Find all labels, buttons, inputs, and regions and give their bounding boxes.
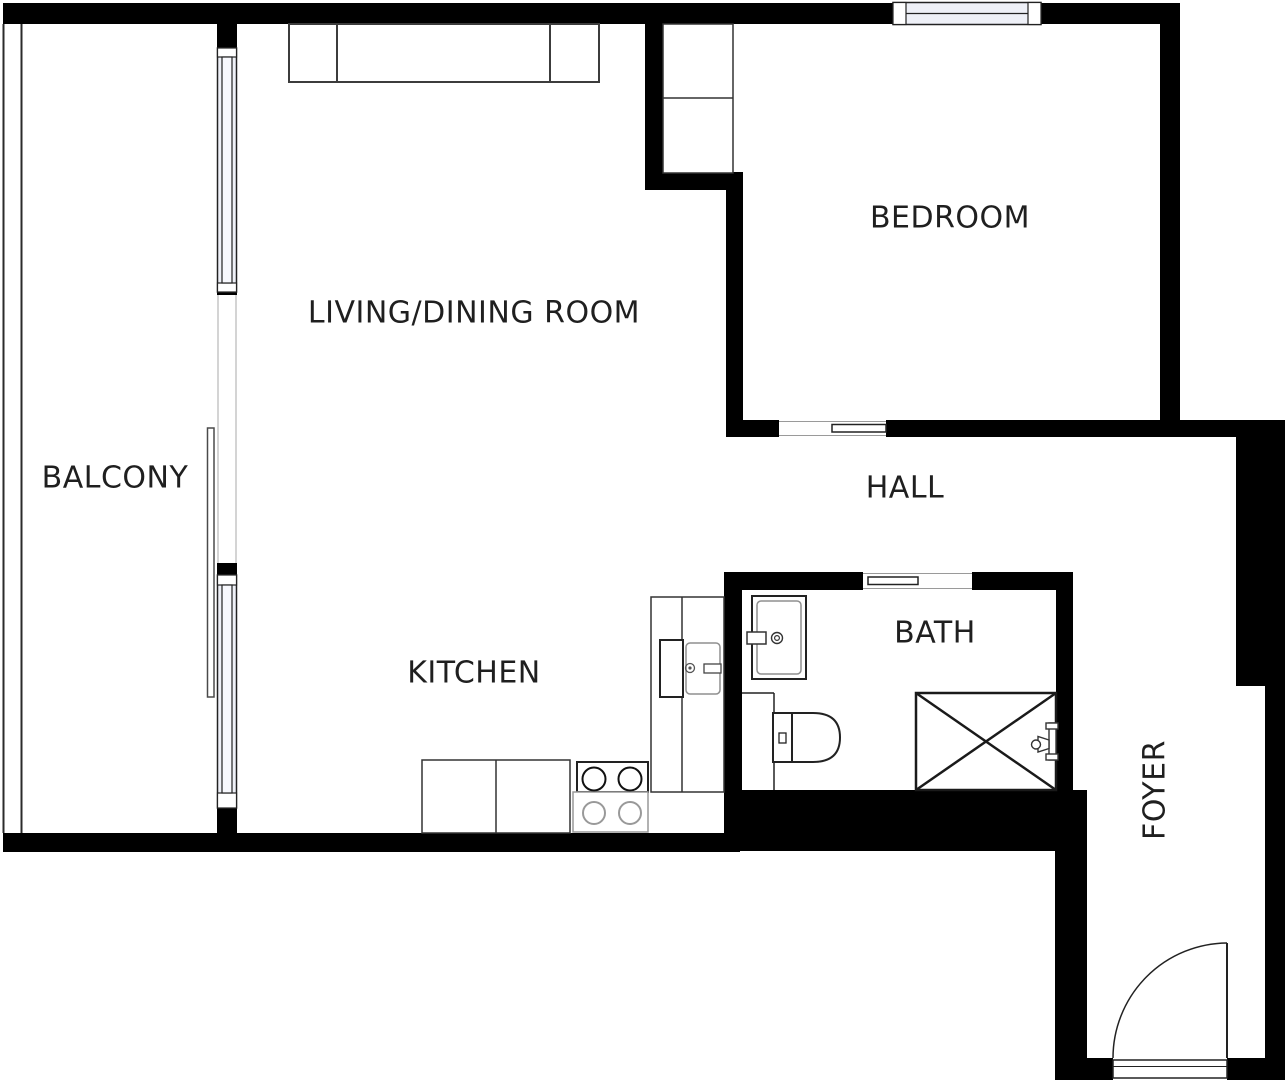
wall-segment [886,420,1285,437]
bath-sliding-door [863,574,972,589]
room-label-living-dining: LIVING/DINING ROOM [308,296,640,331]
stove [573,762,648,832]
wall-segment [724,572,742,851]
wall-segment [217,563,237,575]
room-label-kitchen: KITCHEN [407,656,541,691]
room-label-foyer: FOYER [1138,740,1173,840]
windows [208,3,1042,809]
wall-segment [972,572,1073,590]
wall-segment [726,420,779,437]
balcony-railing [4,24,22,833]
floor-plan: BALCONY LIVING/DINING ROOM BEDROOM HALL … [0,0,1285,1080]
room-label-hall: HALL [866,471,945,506]
wall-segment [1160,24,1180,420]
wall-segment [1227,1058,1285,1080]
wall-segment [645,172,743,190]
base-cabinets [422,760,570,833]
walls [3,3,1285,1080]
wall-segment [1236,437,1285,686]
wall-segment [727,790,1087,851]
wall-segment [1055,828,1087,1080]
room-label-balcony: BALCONY [42,461,189,496]
wall-segment [727,572,863,590]
kitchen-sink [660,640,721,697]
balcony-window-lower [218,575,237,808]
wall-segment [726,190,743,437]
wall-segment [3,3,893,24]
balcony-window-upper [218,48,237,292]
bedroom-window [893,3,1041,25]
wardrobe [663,24,733,173]
sliding-door-leaf [208,428,215,697]
balcony-opening [218,295,236,563]
bedroom-sliding-door [779,422,886,436]
wall-segment [3,833,740,852]
room-label-bedroom: BEDROOM [870,201,1030,236]
room-label-bath: BATH [894,616,976,651]
wall-segment [1041,3,1180,24]
entry-door [1113,943,1227,1078]
wall-segment [1265,686,1285,1080]
wall-segment [217,24,237,48]
toilet [742,693,840,790]
wall-segment [645,3,663,190]
bathroom-vanity [747,596,806,679]
furniture [289,24,733,833]
sofa [289,24,599,82]
wall-segment [217,808,237,852]
